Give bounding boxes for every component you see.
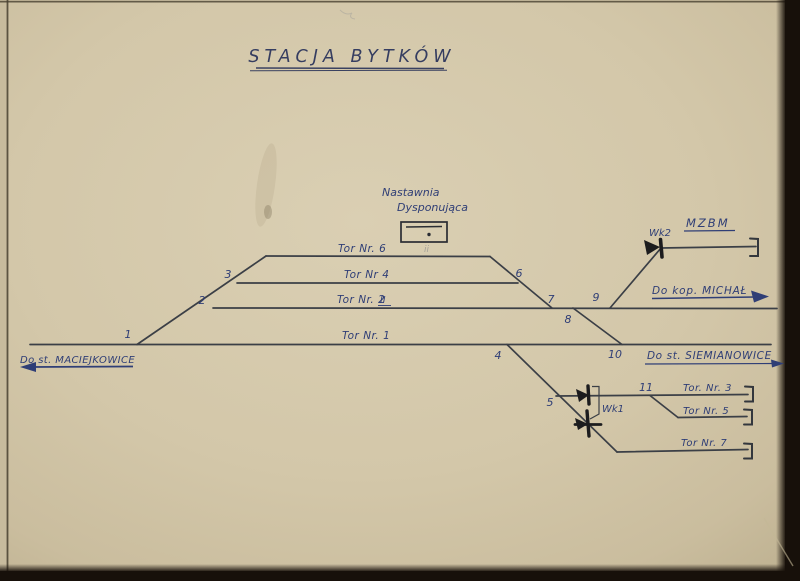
derailer-wk2-bar [661, 240, 663, 258]
title-underline-1 [256, 68, 444, 69]
track-7-label: Tor Nr. 7 [681, 438, 727, 449]
junction-label-6: 6 [516, 267, 523, 280]
route-label-siemianowice: Do st. SIEMIANOWICE [647, 350, 772, 362]
track-2-roman-mark: II [380, 295, 386, 306]
track-6-label: Tor Nr. 6 [338, 243, 386, 255]
track-4-label: Tor Nr 4 [344, 269, 389, 281]
top-edge-line [0, 1, 800, 3]
arrow-right-shaft [645, 364, 775, 365]
left-edge-line [7, 0, 9, 581]
junction-label-2: 2 [199, 294, 206, 307]
signal-box-dot [427, 233, 430, 236]
right-edge-fade [776, 0, 786, 581]
junction-label-1: 1 [125, 328, 132, 341]
junction-label-3: 3 [225, 268, 232, 281]
signal-box-label-line1: Nastawnia [382, 186, 440, 199]
left-margin-strip [0, 0, 7, 581]
track-6-pencil-mark: ii [424, 245, 430, 255]
junction-label-7: 7 [548, 293, 555, 306]
track-2-label: Tor Nr. 2 [337, 294, 385, 306]
junction-label-8: 8 [565, 313, 572, 326]
track-5-label: Tor Nr. 5 [683, 406, 729, 417]
route-label-michal-mine: Do kop. MICHAŁ [652, 285, 747, 297]
right-edge-band [785, 0, 800, 581]
junction-label-9: 9 [593, 291, 600, 304]
mzbm-underline [684, 231, 735, 232]
route-label-maciejkowice: Do st. MACIEJKOWICE [20, 355, 135, 366]
derailer-wk2-label: Wk2 [649, 228, 671, 239]
junction-label-10: 10 [608, 348, 622, 361]
scanned-track-diagram: STACJA BYTKÓW Nastawnia Dysponująca [0, 0, 800, 581]
junction-label-4: 4 [495, 349, 502, 362]
track-2-line [213, 308, 777, 309]
signal-box-label-line2: Dysponująca [397, 201, 468, 214]
station-diagram-svg: STACJA BYTKÓW Nastawnia Dysponująca [0, 0, 800, 581]
track-6-line [266, 256, 490, 257]
track-1-label: Tor Nr. 1 [342, 330, 390, 342]
track-3-label: Tor. Nr. 3 [683, 383, 732, 394]
route-label-mzbm: MZBM [686, 216, 730, 230]
bottom-edge-fade [0, 564, 800, 572]
derailer-wk1-label: Wk1 [602, 404, 624, 415]
signal-box-inner-line [406, 227, 442, 228]
bottom-edge-band [0, 571, 800, 581]
arrow-left-shaft [31, 367, 133, 368]
junction-label-5: 5 [547, 396, 554, 409]
smudge-mark [264, 205, 272, 219]
title-underline-2 [250, 70, 447, 71]
junction-label-11: 11 [639, 381, 653, 394]
page-title: STACJA BYTKÓW [248, 45, 455, 67]
